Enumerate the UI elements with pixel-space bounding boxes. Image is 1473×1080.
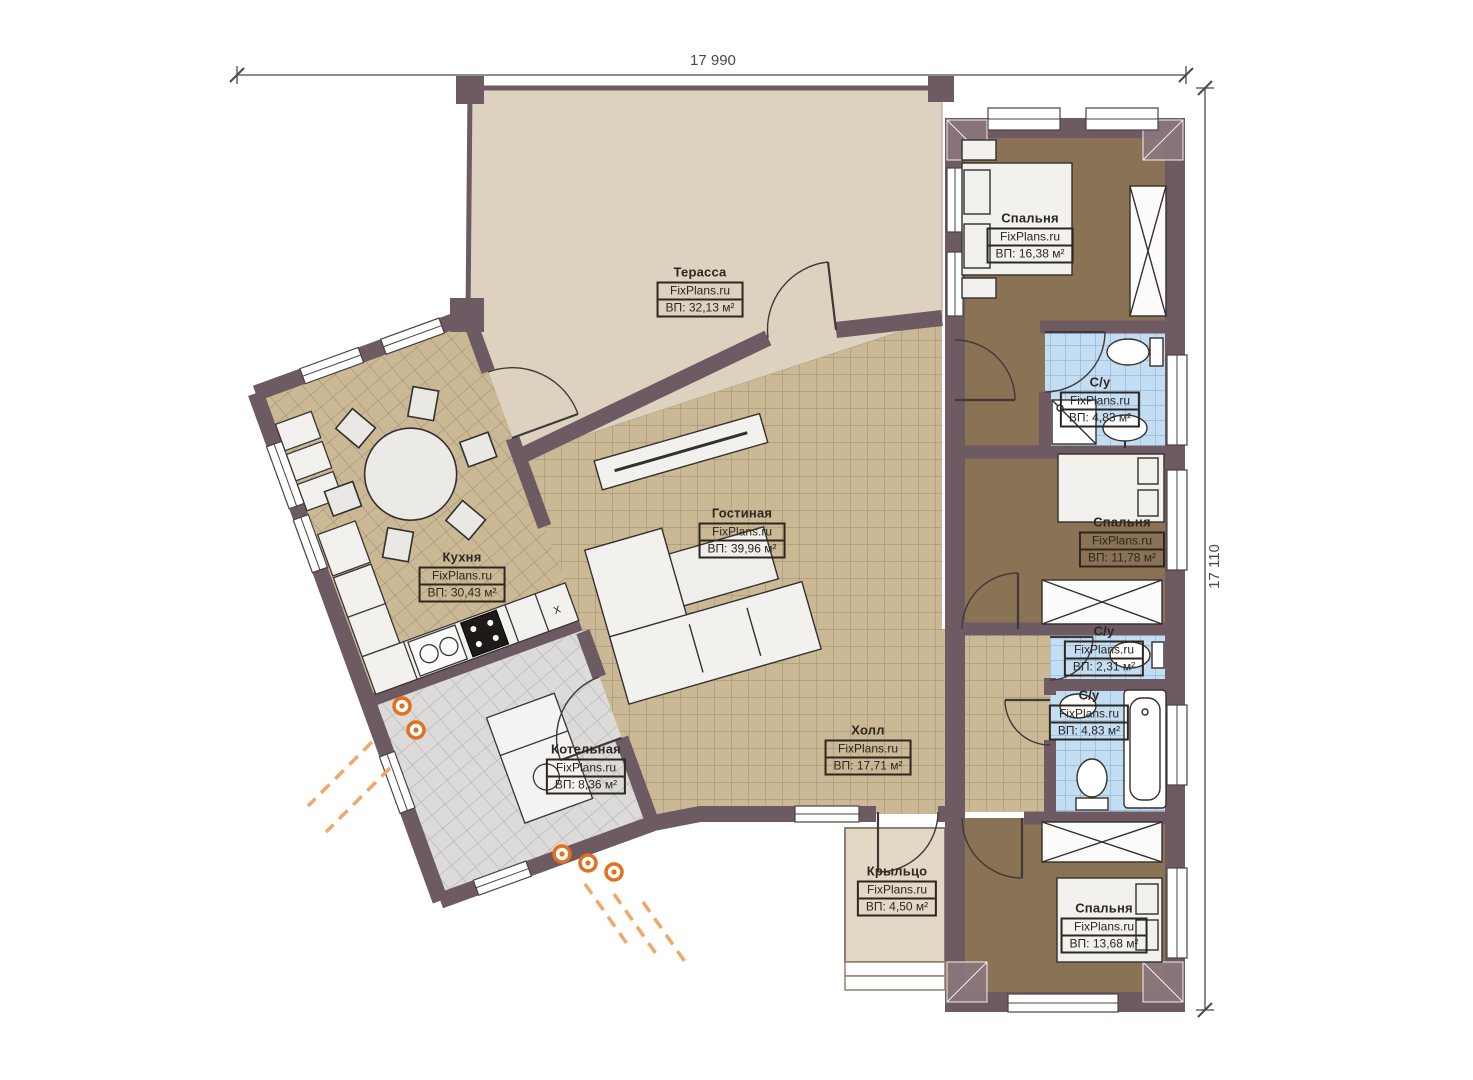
pillow — [1136, 920, 1158, 950]
porch-floor — [845, 828, 945, 962]
nightstand — [962, 140, 996, 160]
floor-plan-svg: x — [0, 0, 1473, 1080]
pillow — [1138, 490, 1158, 516]
nightstand — [962, 278, 996, 298]
terrace-column — [456, 76, 484, 104]
bathtub — [1124, 690, 1166, 808]
terrace-column — [450, 298, 484, 332]
pillow — [1138, 458, 1158, 484]
porch-steps — [845, 962, 945, 990]
toilet — [1107, 338, 1163, 366]
sink — [1060, 694, 1096, 718]
toilet — [1110, 642, 1164, 668]
toilet — [1076, 759, 1108, 810]
bed — [962, 140, 1072, 298]
pillow — [964, 170, 990, 214]
bed — [1057, 878, 1162, 962]
floor-plan-page: x — [0, 0, 1473, 1080]
dimension-right-label: 17 110 — [1206, 544, 1223, 589]
wardrobe — [1130, 186, 1166, 316]
wardrobe — [1042, 580, 1162, 624]
bed — [1058, 454, 1164, 522]
pillow — [964, 224, 990, 268]
terrace-column — [928, 76, 954, 102]
washing-machine — [1052, 400, 1096, 444]
dimension-top-label: 17 990 — [690, 52, 736, 69]
pillow — [1136, 884, 1158, 914]
wardrobe — [1042, 822, 1162, 862]
